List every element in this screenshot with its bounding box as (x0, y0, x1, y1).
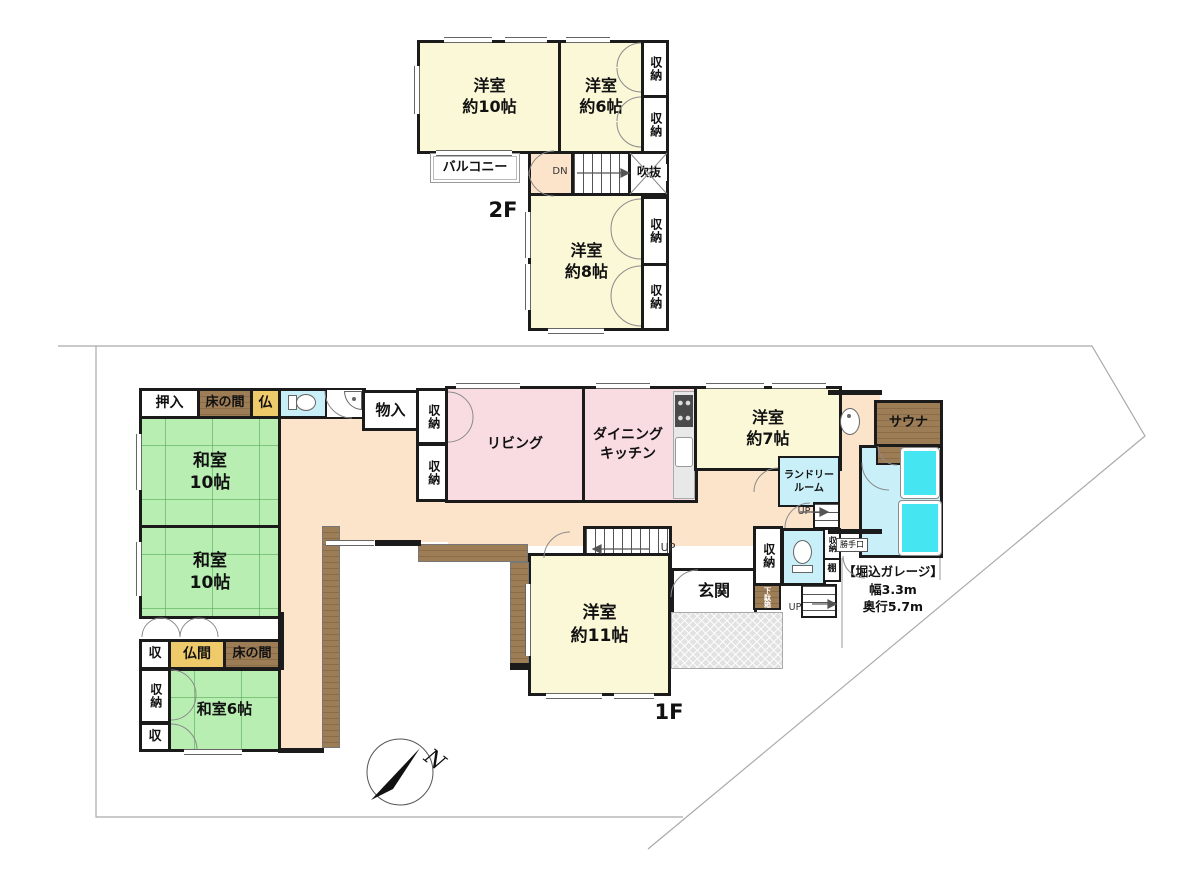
wall-segment-2 (375, 540, 421, 546)
genkan: 玄関 (671, 568, 757, 615)
room-shu-left: 収 (139, 639, 171, 670)
wall-segment-1 (278, 612, 284, 670)
stairs-side-1 (813, 502, 840, 529)
room-butsu: 仏 (250, 388, 281, 419)
floor1-label: 1F (643, 698, 695, 727)
room-2f-western10-label: 洋室 約10帖 (462, 76, 516, 118)
void-atrium (628, 151, 669, 196)
room-japanese10-upper-label: 和室 10帖 (190, 450, 231, 494)
room-storage-left: 収納 (139, 668, 171, 724)
room-dining-kitchen-label: ダイニング キッチン (593, 426, 663, 462)
room-japanese10-lower: 和室 10帖 (139, 525, 281, 619)
window (136, 434, 142, 490)
room-western11: 洋室 約11帖 (528, 553, 671, 696)
room-western11-label: 洋室 約11帖 (571, 602, 629, 646)
engawa-deck-left (322, 526, 340, 748)
floor-plan-canvas: 洋室 約10帖 洋室 約6帖 収納 収納 バルコニー 洋室 約8帖 収納 収納 … (0, 0, 1200, 889)
room-tokonoma-bottom: 床の間 (223, 639, 281, 670)
toilet-tank-icon-1 (288, 395, 297, 410)
room-butsuma-label: 仏間 (183, 645, 211, 663)
up-side2-label: UP (784, 601, 806, 614)
compass: N (367, 739, 450, 805)
room-japanese10-lower-label: 和室 10帖 (190, 550, 231, 594)
window (505, 37, 547, 43)
room-japanese10-upper: 和室 10帖 (139, 416, 281, 528)
window (546, 693, 602, 699)
room-laundry-label: ランドリー ルーム (784, 469, 834, 495)
room-japanese6: 和室6帖 (168, 668, 281, 752)
room-2f-storage4-label: 収納 (647, 284, 663, 310)
window (525, 584, 531, 656)
window (436, 150, 512, 156)
room-storage-genkan-label: 収納 (760, 543, 776, 569)
compass-north-label: N (418, 744, 450, 777)
katteguchi-door: 勝手口 (836, 538, 868, 552)
window (184, 749, 242, 755)
window (525, 212, 531, 258)
window (136, 542, 142, 596)
room-2f-storage1-label: 収納 (647, 56, 663, 82)
room-storage-b-label: 収納 (425, 460, 441, 486)
balcony-label: バルコニー (443, 160, 508, 177)
getabako: 下駄箱 (753, 584, 781, 610)
room-japanese6-label: 和室6帖 (197, 700, 252, 720)
katteguchi-label: 勝手口 (840, 540, 864, 550)
room-sauna-label: サウナ (889, 415, 928, 432)
up-main-label: UP (653, 540, 683, 555)
room-living: リビング (445, 386, 585, 503)
room-monoire-label: 物入 (375, 401, 405, 421)
room-2f-western6: 洋室 約6帖 (558, 40, 644, 154)
bathtub-2 (899, 501, 941, 555)
room-western7-label: 洋室 約7帖 (746, 408, 789, 450)
floor2-label: 2F (478, 196, 528, 225)
room-2f-storage2: 収納 (641, 95, 669, 154)
room-oshiire-label: 押入 (156, 394, 184, 412)
toilet-icon-1 (296, 394, 316, 411)
kitchen-sink-icon (675, 437, 693, 467)
room-storage-a-label: 収納 (425, 404, 441, 430)
stairs-2f (571, 151, 631, 196)
washbasin-faucet-dot (352, 397, 356, 401)
room-2f-storage1: 収納 (641, 40, 669, 98)
toilet-icon-2 (793, 540, 812, 564)
window (525, 264, 531, 310)
room-2f-storage3: 収納 (641, 196, 669, 266)
room-2f-western10: 洋室 約10帖 (417, 40, 562, 154)
window (596, 383, 650, 389)
compass-needle-icon (371, 748, 420, 800)
up-side1-label: UP (793, 505, 815, 518)
room-tokonoma-bottom-label: 床の間 (232, 646, 271, 663)
wall-segment-6 (278, 748, 324, 753)
room-tokonoma-top-label: 床の間 (205, 395, 244, 412)
room-butsu-label: 仏 (259, 394, 273, 412)
corridor-west-wing (281, 416, 324, 752)
oval-washbasin-icon (840, 408, 860, 435)
wall-segment-5 (828, 529, 882, 534)
room-shu-bottom-label: 収 (148, 729, 161, 746)
stove-icon (675, 395, 693, 427)
stairs-side-2 (801, 584, 837, 618)
room-laundry: ランドリー ルーム (778, 456, 840, 507)
window (414, 66, 420, 114)
washbasin-faucet-dot-2 (847, 414, 851, 418)
window (548, 328, 604, 334)
window (614, 693, 654, 699)
room-oshiire: 押入 (139, 388, 200, 419)
room-2f-storage4: 収納 (641, 263, 669, 331)
room-tokonoma-top: 床の間 (197, 388, 253, 419)
bathtub-1 (901, 448, 939, 498)
room-butsuma: 仏間 (168, 639, 226, 670)
window (706, 383, 764, 389)
room-storage-genkan: 収納 (753, 526, 783, 586)
balcony: バルコニー (430, 153, 520, 183)
room-sauna: サウナ (874, 400, 943, 447)
room-shu-left-label: 収 (148, 646, 161, 663)
entrance-porch (671, 612, 783, 669)
room-monoire: 物入 (362, 390, 419, 431)
room-2f-western8-label: 洋室 約8帖 (565, 241, 608, 283)
stairs-down-label: DN (546, 165, 574, 179)
room-2f-storage3-label: 収納 (647, 218, 663, 244)
room-shu-bottom: 収 (139, 722, 171, 752)
toilet-tank-icon-2 (792, 565, 813, 573)
room-2f-storage2-label: 収納 (647, 112, 663, 138)
getabako-label: 下駄箱 (762, 587, 771, 608)
window (444, 37, 492, 43)
engawa-deck-top (418, 544, 528, 562)
garage-note: 【堀込ガレージ】 幅3.3m 奥行5.7m (833, 563, 953, 616)
genkan-label: 玄関 (698, 581, 730, 602)
window (456, 383, 520, 389)
window (772, 383, 826, 389)
room-2f-western8: 洋室 約8帖 (528, 193, 645, 331)
compass-circle (367, 739, 433, 805)
room-storage-left-label: 収納 (147, 683, 163, 709)
window (326, 540, 374, 546)
room-living-label: リビング (487, 435, 543, 453)
wall-segment-3 (510, 663, 530, 670)
window (566, 37, 610, 43)
wall-segment-4 (828, 390, 882, 395)
room-2f-western6-label: 洋室 約6帖 (579, 76, 622, 118)
